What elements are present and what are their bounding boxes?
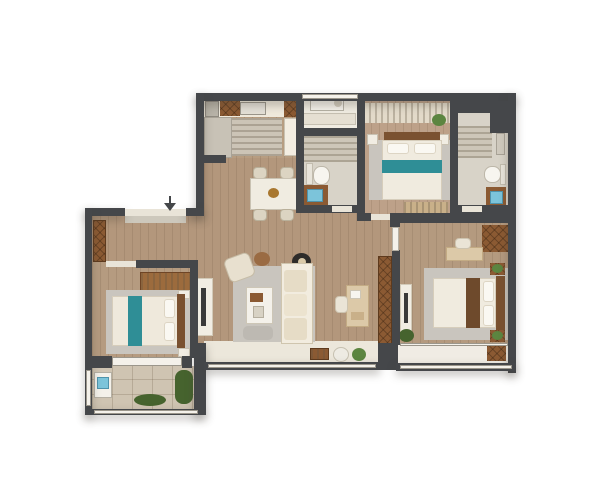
wall-bedroom2-bottom-left <box>357 213 371 221</box>
floor-plan-screenshot <box>0 0 600 500</box>
island-item-2 <box>351 312 364 320</box>
bedroomL-threshold <box>106 261 136 267</box>
kitchen-cabinet-right <box>284 101 296 117</box>
side-table <box>254 252 270 266</box>
window-bay-master <box>400 365 512 369</box>
window-balconyL-bottom <box>94 410 198 414</box>
bedroomL-wardrobe <box>140 272 194 291</box>
wall-right <box>508 93 516 373</box>
master-desk-chair <box>455 238 471 249</box>
bath2-threshold <box>462 206 482 212</box>
master-pillow-bottom <box>483 305 494 326</box>
bedroom2-plant <box>432 114 446 126</box>
wall-bedroomL-right <box>190 262 198 358</box>
kitchen-island <box>232 118 282 156</box>
entry-cabinet <box>93 220 106 262</box>
coffee-table-tray <box>250 293 263 302</box>
wall-master-left-stub <box>390 213 400 227</box>
bedroomL-headboard <box>177 294 185 348</box>
wall-bedroomL-top <box>136 260 198 268</box>
master-throw <box>466 278 480 328</box>
bedroom2-threshold <box>371 214 390 220</box>
master-pillow-top <box>483 281 494 302</box>
bath1-toilet-bowl <box>313 166 330 185</box>
balconyL-plants-right <box>175 370 193 404</box>
bedroom2-nightstand-left <box>367 134 378 145</box>
dining-chair-3 <box>253 209 267 221</box>
bath1-toilet-tank <box>306 163 313 185</box>
dining-chair-4 <box>280 209 294 221</box>
floor-plan <box>0 0 600 500</box>
bedroom2-pillow-left <box>387 143 409 154</box>
wall-bedroom2-bath2 <box>450 101 458 221</box>
sofa-cushion-1 <box>284 270 307 292</box>
wall-bath2-notch <box>490 101 508 133</box>
master-plant-top <box>492 264 503 273</box>
wall-balcony-sep-chunk <box>378 343 398 370</box>
tall-cabinet <box>378 256 392 344</box>
master-headboard <box>496 276 505 330</box>
master-desk <box>446 247 483 261</box>
bath1-threshold <box>332 206 352 212</box>
bath1-shower <box>304 136 357 162</box>
master-tv <box>404 293 408 323</box>
wall-bath1-bedroom2 <box>357 101 365 221</box>
dining-centerpiece <box>268 188 279 198</box>
bedroom2-pillow-right <box>414 143 436 154</box>
kitchen-hood-corner <box>204 117 232 158</box>
bedroomL-pillow-top <box>164 299 175 318</box>
window-laundry-top <box>302 94 358 99</box>
bedroomL-throw <box>128 296 142 346</box>
window-bay-master-inner <box>400 343 508 346</box>
pouf <box>243 326 273 340</box>
sofa-cushion-2 <box>284 294 307 316</box>
master-wardrobe <box>482 225 508 252</box>
island-item-1 <box>350 290 361 299</box>
balcony-planter <box>310 348 329 360</box>
wall-kitchen-bottom-stub <box>196 155 226 163</box>
kitchen-sink <box>240 102 266 115</box>
master-plant-bottom <box>492 331 503 340</box>
balconyL-sink-basin <box>97 377 109 389</box>
wall-bedroomL-sill-right <box>182 356 192 368</box>
bath2-sink <box>490 191 503 204</box>
master-plant-corner <box>399 329 414 342</box>
balcony-table <box>333 347 349 362</box>
window-balconyL-left <box>86 370 91 406</box>
entry-door-arrow-stem-icon <box>169 196 171 204</box>
bath2-shower <box>458 126 492 158</box>
balcony-plant <box>352 348 366 361</box>
bath1-sink <box>307 189 323 202</box>
bedroom2-throw <box>382 160 442 173</box>
island-chair <box>335 296 348 313</box>
wall-kitchen-bath1 <box>296 93 304 213</box>
window-bedroomL-sill <box>112 357 182 366</box>
tv <box>201 288 206 326</box>
laundry-shelf <box>302 113 356 125</box>
window-balcony-living <box>208 364 376 368</box>
bedroom2-headboard <box>384 132 440 140</box>
master-door-leaf <box>392 227 399 251</box>
wall-entry-b <box>186 208 204 216</box>
master-bay-cabinet <box>487 346 506 361</box>
kitchen-cabinet-left <box>220 101 240 116</box>
entry-mat <box>125 216 186 223</box>
wall-master-left <box>392 250 400 345</box>
balconyL-plant-bottom <box>134 394 166 406</box>
bath2-shelf <box>496 133 505 155</box>
coffee-table-book <box>253 306 264 318</box>
sofa-cushion-3 <box>284 318 307 340</box>
bath2-toilet-bowl <box>484 166 501 183</box>
bedroomL-pillow-bottom <box>164 322 175 341</box>
wall-laundry-bottom <box>296 128 363 136</box>
kitchen-corner-sink <box>205 101 219 117</box>
wall-master-top <box>396 213 516 223</box>
wall-bedroomL-sill-left <box>92 356 112 368</box>
wall-bath1-bottom <box>296 205 365 213</box>
entry-threshold <box>125 209 186 216</box>
